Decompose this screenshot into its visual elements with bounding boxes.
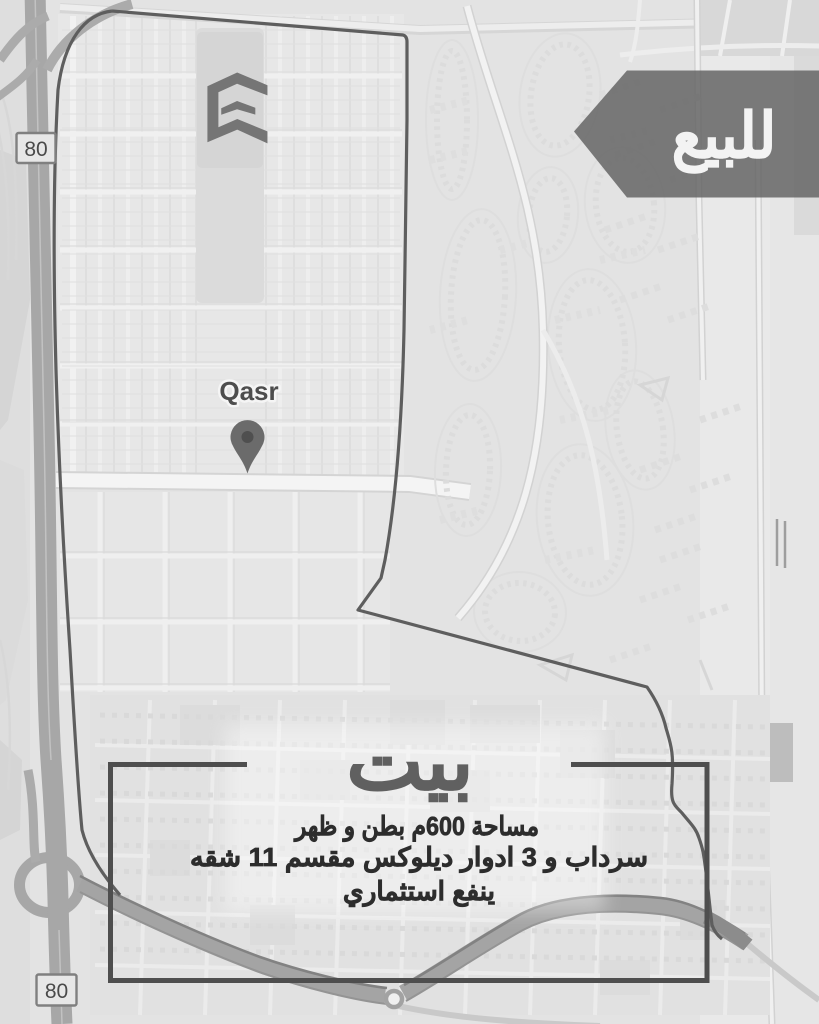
svg-text:مساحة 600م بطن و ظهر: مساحة 600م بطن و ظهر <box>293 811 539 842</box>
svg-text:80: 80 <box>45 980 68 1003</box>
svg-text:ينفع استثماري: ينفع استثماري <box>343 876 495 907</box>
svg-text:سرداب و 3 ادوار ديلوكس مقسم 11: سرداب و 3 ادوار ديلوكس مقسم 11 شقه <box>190 842 648 873</box>
svg-text:للبيع: للبيع <box>672 102 776 174</box>
svg-text:بيت: بيت <box>347 718 474 806</box>
svg-text:80: 80 <box>24 138 47 161</box>
svg-text:Qasr: Qasr <box>219 376 278 406</box>
